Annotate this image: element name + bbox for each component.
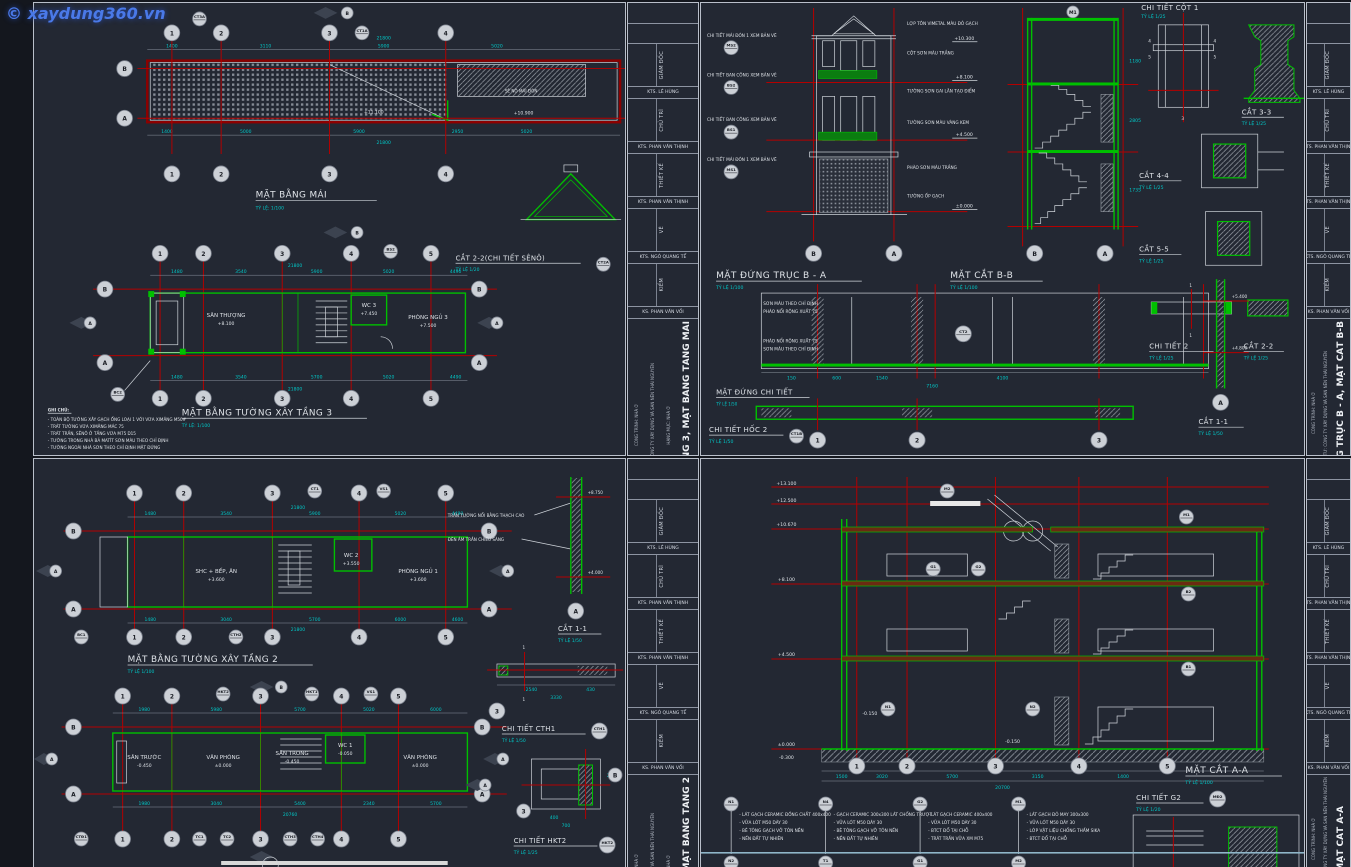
svg-text:1500: 1500 — [836, 774, 848, 780]
g2-detail: CHI TIẾT G2 TỶ LỆ 1/20 MĐ2 — [1133, 791, 1299, 867]
section-aa: +13.100 +12.500 +10.670 +8.100 +4.500 ±0… — [771, 477, 1282, 791]
svg-text:A: A — [50, 757, 54, 763]
svg-text:- BTCT ĐỔ TẠI CHỖ: - BTCT ĐỔ TẠI CHỖ — [928, 828, 969, 833]
svg-text:B: B — [280, 685, 284, 691]
svg-text:B: B — [613, 772, 618, 779]
svg-text:TỶ LỆ 1/25: TỶ LỆ 1/25 — [1243, 354, 1268, 362]
svg-text:4: 4 — [349, 396, 353, 403]
svg-text:TỶ LỆ 1/50: TỶ LỆ 1/50 — [501, 736, 526, 744]
svg-text:+10.900: +10.900 — [514, 110, 534, 116]
svg-text:1480: 1480 — [144, 617, 156, 623]
watermark-logo: © xaydung360.vn — [6, 4, 166, 23]
svg-text:+8.100: +8.100 — [956, 75, 973, 81]
svg-text:4490: 4490 — [450, 269, 462, 275]
drawing-title: CHI TIẾT CTH1 — [502, 723, 556, 733]
drawing-title: MẶT BẰNG MÁI — [256, 188, 327, 201]
svg-text:- BTCT ĐỔ TẠI CHỖ: - BTCT ĐỔ TẠI CHỖ — [1027, 836, 1068, 841]
svg-text:4600: 4600 — [452, 617, 464, 623]
svg-text:3040: 3040 — [220, 617, 232, 623]
svg-text:TỶ LỆ 1/25: TỶ LỆ 1/25 — [1138, 256, 1163, 264]
drawing-title: MẶT BẰNG TƯỜNG XÂY TẦNG 3 — [182, 405, 333, 418]
drawing-title: CẮT 2-2(CHI TIẾT SÊNÔ) — [456, 252, 545, 262]
svg-text:- LỚP VẬT LIỆU CHỐNG THẤM SIKA: - LỚP VẬT LIỆU CHỐNG THẤM SIKA — [1027, 828, 1101, 833]
svg-text:+3.600: +3.600 — [208, 577, 225, 583]
room-label: SÂN THƯỢNG — [207, 312, 246, 319]
svg-text:±0.000: ±0.000 — [956, 204, 973, 210]
svg-text:2: 2 — [182, 634, 186, 641]
svg-text:G2: G2 — [975, 564, 981, 569]
svg-text:5020: 5020 — [395, 511, 407, 517]
svg-text:5: 5 — [429, 251, 433, 258]
svg-text:B2: B2 — [1186, 589, 1192, 594]
titleblock-floorplans: GIÁM ĐỐC KTS. LÊ HÙNG CHỦ TRÌ KTS. PHAN … — [627, 458, 699, 867]
svg-text:CT2A: CT2A — [598, 259, 609, 264]
svg-text:HKT2: HKT2 — [217, 689, 229, 694]
sheet-kt02-drawing-area: 21800 1400311059005020 14005000590029505… — [33, 2, 626, 456]
svg-text:TỶ LỆ 1/100: TỶ LỆ 1/100 — [127, 667, 155, 675]
svg-text:1: 1 — [170, 30, 174, 37]
svg-text:3: 3 — [1181, 116, 1184, 121]
svg-text:3540: 3540 — [235, 374, 247, 380]
svg-text:BS2: BS2 — [386, 246, 395, 251]
svg-text:5020: 5020 — [383, 269, 395, 275]
svg-text:700: 700 — [562, 823, 571, 829]
svg-text:- TRÁT TRẦN VỮA XM M75: - TRÁT TRẦN VỮA XM M75 — [928, 836, 983, 841]
svg-text:- TOÀN BỘ TƯỜNG XÂY GẠCH ỐNG L: - TOÀN BỘ TƯỜNG XÂY GẠCH ỐNG LOẠI 1 VỚI … — [48, 417, 187, 422]
svg-text:T1: T1 — [823, 858, 829, 863]
svg-text:VS1: VS1 — [367, 689, 376, 694]
svg-text:A: A — [892, 251, 897, 258]
svg-text:1980: 1980 — [139, 707, 151, 713]
stair-flights — [1035, 85, 1091, 223]
titleblock-kt02: GIÁM ĐỐC KTS. LÊ HÙNG CHỦ TRÌ KTS. PHAN … — [627, 2, 699, 456]
svg-text:A: A — [1218, 400, 1223, 407]
svg-text:1: 1 — [121, 836, 125, 843]
svg-text:B: B — [487, 528, 492, 535]
svg-text:2540: 2540 — [526, 687, 538, 693]
svg-text:2: 2 — [182, 490, 186, 497]
svg-text:6000: 6000 — [430, 707, 442, 713]
cut-1-1-q2: +5.400 +4.800 A CẮT 1-1 TỶ LỆ 1/50 — [1197, 279, 1248, 437]
svg-text:2805: 2805 — [1129, 118, 1141, 124]
cad-drawing-page: © xaydung360.vn 21800 1400311059005020 1… — [0, 0, 1351, 867]
svg-text:4: 4 — [357, 490, 361, 497]
svg-text:PHÀO NỔI RỘNG XUẤT 75: PHÀO NỔI RỘNG XUẤT 75 — [763, 309, 818, 314]
titleblock-row: GIÁM ĐỐC — [628, 44, 698, 87]
svg-text:5: 5 — [444, 634, 448, 641]
svg-text:5700: 5700 — [946, 774, 958, 780]
svg-text:2: 2 — [219, 30, 223, 37]
svg-text:A: A — [480, 791, 485, 798]
svg-text:A: A — [487, 606, 492, 613]
svg-text:B: B — [122, 66, 127, 73]
svg-text:M1: M1 — [1069, 10, 1077, 16]
svg-text:3: 3 — [495, 708, 499, 715]
svg-text:5020: 5020 — [383, 374, 395, 380]
svg-text:1: 1 — [1189, 333, 1192, 338]
svg-text:TỶ LỆ 1/25: TỶ LỆ 1/25 — [1148, 354, 1173, 362]
revision-box — [1307, 459, 1350, 500]
svg-text:3: 3 — [521, 808, 525, 815]
section-note: TRẦN TƯỜNG NỔI BẰNG THẠCH CAO — [447, 513, 525, 518]
svg-text:A: A — [71, 606, 76, 613]
svg-text:CT1B: CT1B — [791, 431, 802, 436]
svg-text:VĂN PHÒNG: VĂN PHÒNG — [403, 754, 437, 761]
elevation-annotation: LỢP TÔN VIMETAL MÀU ĐỎ GẠCH — [907, 21, 978, 26]
svg-text:VS1: VS1 — [379, 486, 388, 491]
svg-text:21800: 21800 — [288, 386, 303, 392]
svg-text:- VỮA LÓT M50 DÀY 30: - VỮA LÓT M50 DÀY 30 — [1027, 820, 1076, 825]
svg-text:HKT2: HKT2 — [602, 840, 614, 845]
svg-text:3: 3 — [280, 251, 284, 258]
svg-text:CẮT 5-5: CẮT 5-5 — [1139, 243, 1169, 253]
svg-text:7160: 7160 — [926, 383, 938, 389]
svg-text:1980: 1980 — [139, 801, 151, 807]
svg-text:TỶ LỆ 1/50: TỶ LỆ 1/50 — [715, 401, 738, 406]
svg-text:CẮT 1-1: CẮT 1-1 — [1198, 416, 1228, 426]
svg-text:BS1: BS1 — [727, 127, 736, 132]
drawing-title: CHI TIẾT HKT2 — [514, 835, 567, 845]
svg-text:A: A — [483, 783, 487, 789]
svg-text:MS2: MS2 — [726, 43, 736, 48]
svg-text:TỶ LỆ: 1/100: TỶ LỆ: 1/100 — [181, 421, 210, 429]
sheet-title: MẶT ĐỨNG TRỤC B - A, MẶT CẮT B-B — [1336, 321, 1346, 456]
cut-4-4: CẮT 4-4 TỶ LỆ 1/25 — [1138, 134, 1284, 191]
svg-text:4: 4 — [444, 30, 448, 37]
svg-text:3: 3 — [327, 171, 331, 178]
svg-text:TỶ LỆ 1/25: TỶ LỆ 1/25 — [1140, 12, 1165, 20]
drawing-title: CHI TIẾT CỘT 1 — [1141, 3, 1198, 12]
svg-text:G1: G1 — [930, 564, 936, 569]
drawing-title: MẶT BẰNG TƯỜNG XÂY TẦNG 2 — [128, 652, 279, 665]
svg-text:TỶ LỆ 1/25: TỶ LỆ 1/25 — [1241, 119, 1266, 127]
drawing-title: CHI TIẾT G2 — [1136, 792, 1181, 802]
room-label: SHC + BẾP, ĂN — [195, 567, 237, 575]
drawing-title: MẶT ĐỨNG TRỤC B - A — [716, 269, 827, 281]
svg-text:+12.500: +12.500 — [776, 498, 796, 504]
svg-text:5020: 5020 — [363, 707, 375, 713]
svg-text:600: 600 — [832, 376, 841, 382]
project-title-area: CÔNG TRÌNH: NHÀ Ở CHỦ ĐẦU TƯ: CÔNG TY XÂ… — [628, 319, 698, 456]
svg-text:GHI CHÚ:: GHI CHÚ: — [48, 407, 70, 412]
sheet-section-aa-area: +13.100 +12.500 +10.670 +8.100 +4.500 ±0… — [700, 458, 1305, 867]
svg-text:5700: 5700 — [430, 801, 442, 807]
svg-text:3: 3 — [270, 490, 274, 497]
svg-text:3: 3 — [1097, 438, 1101, 445]
roof-plan: 21800 1400311059005020 14005000590029505… — [117, 7, 625, 212]
svg-text:- NỀN ĐẤT TỰ NHIÊN: - NỀN ĐẤT TỰ NHIÊN — [834, 836, 878, 841]
floor2-plan: 1 2 3 4 5 CT1 VS1 B A A B A A — [36, 484, 514, 675]
cut-5-5: CẮT 5-5 TỶ LỆ 1/25 — [1138, 212, 1262, 266]
svg-text:A: A — [103, 360, 108, 367]
svg-text:-0.450: -0.450 — [285, 759, 300, 765]
svg-text:4100: 4100 — [997, 376, 1009, 382]
svg-text:N2: N2 — [728, 858, 734, 863]
materials-legend: N1 - LÁT GẠCH CERAMIC ĐỒNG CHẤT 400x400 … — [701, 797, 1304, 867]
svg-text:A: A — [501, 757, 505, 763]
svg-text:TỶ LỆ 1/100: TỶ LỆ 1/100 — [715, 283, 743, 291]
hkt2-detail: 400220700 B 3 A CHI TIẾT HKT2 TỶ LỆ 1/25… — [465, 749, 622, 856]
svg-text:21800: 21800 — [288, 263, 303, 269]
svg-text:- TƯỜNG NGOÀI NHÀ SƠN THEO CHỈ: - TƯỜNG NGOÀI NHÀ SƠN THEO CHỈ ĐỊNH MẶT … — [48, 445, 161, 450]
svg-text:1: 1 — [158, 251, 162, 258]
section-bb: M1 1180 2805 1735 B — [949, 6, 1141, 291]
svg-text:3540: 3540 — [235, 269, 247, 275]
titleblock-kt03: GIÁM ĐỐC KTS. LÊ HÙNG CHỦ TRÌ KTS. PHAN … — [1306, 2, 1351, 456]
level-label: +13.100 — [776, 481, 796, 487]
svg-text:TỶ LỆ 1/25: TỶ LỆ 1/25 — [513, 848, 538, 856]
svg-text:-0.150: -0.150 — [1005, 739, 1020, 745]
svg-text:A: A — [506, 569, 510, 575]
svg-text:150: 150 — [787, 376, 796, 382]
svg-text:1: 1 — [855, 764, 859, 771]
svg-text:CHI TIẾT BAN CÔNG XEM BẢN VẼ: CHI TIẾT BAN CÔNG XEM BẢN VẼ — [707, 72, 777, 78]
general-notes: GHI CHÚ: - TOÀN BỘ TƯỜNG XÂY GẠCH ỐNG LO… — [48, 407, 187, 450]
svg-text:B: B — [811, 251, 816, 258]
section-aa-canvas: +13.100 +12.500 +10.670 +8.100 +4.500 ±0… — [701, 459, 1304, 867]
svg-text:4: 4 — [357, 634, 361, 641]
revision-box — [1307, 3, 1350, 44]
svg-text:- BÊ TÔNG GẠCH VỠ TÔN NỀN: - BÊ TÔNG GẠCH VỠ TÔN NỀN — [739, 828, 803, 833]
svg-text:B: B — [346, 11, 350, 17]
svg-text:5900: 5900 — [311, 269, 323, 275]
svg-text:PHÀO SƠN MÀU TRẮNG: PHÀO SƠN MÀU TRẮNG — [907, 165, 957, 170]
svg-text:5: 5 — [429, 396, 433, 403]
svg-text:4: 4 — [1214, 39, 1217, 44]
svg-text:4: 4 — [339, 693, 343, 700]
svg-text:1: 1 — [170, 171, 174, 178]
callout-note: CHI TIẾT MÁI ĐÓN 1 XEM BẢN VẼ — [707, 32, 777, 38]
svg-text:B: B — [355, 230, 359, 236]
svg-text:-0.450: -0.450 — [137, 763, 152, 769]
svg-text:2: 2 — [201, 396, 205, 403]
svg-text:- GẠCH CERAMIC 300x300 LÁT CHỐ: - GẠCH CERAMIC 300x300 LÁT CHỐNG TRƯỢT — [834, 812, 933, 817]
bottom-rule — [701, 852, 1304, 854]
svg-text:1: 1 — [132, 634, 136, 641]
svg-text:3: 3 — [270, 634, 274, 641]
svg-text:2: 2 — [915, 438, 919, 445]
pillar-detail: CHI TIẾT CỘT 1 TỶ LỆ 1/25 44 55 3 — [1140, 3, 1218, 122]
svg-text:N1: N1 — [728, 799, 734, 804]
svg-text:2: 2 — [905, 764, 909, 771]
svg-text:5: 5 — [1214, 55, 1217, 60]
svg-text:2340: 2340 — [363, 801, 375, 807]
svg-text:5400: 5400 — [294, 801, 306, 807]
floor3-plan: B 1 2 3 4 BS2 B A A B A A — [69, 227, 502, 430]
revision-box — [628, 3, 698, 44]
dim: 21800 — [376, 36, 391, 42]
svg-text:21800: 21800 — [291, 505, 305, 511]
svg-text:1480: 1480 — [171, 269, 183, 275]
svg-text:CẮT 4-4: CẮT 4-4 — [1139, 170, 1169, 180]
svg-text:TỶ LỆ 1/50: TỶ LỆ 1/50 — [1197, 429, 1222, 437]
niche-detail-bar: CHI TIẾT HỐC 2 TỶ LỆ 1/50 CT1B 1 2 3 — [708, 398, 1133, 448]
svg-text:2: 2 — [170, 836, 174, 843]
svg-text:21800: 21800 — [291, 627, 305, 633]
svg-text:+8.100: +8.100 — [218, 321, 235, 327]
svg-text:20760: 20760 — [283, 812, 297, 818]
svg-text:3: 3 — [258, 836, 262, 843]
svg-text:- TRÁT TƯỜNG VỮA XIMĂNG MÁC 75: - TRÁT TƯỜNG VỮA XIMĂNG MÁC 75 — [48, 424, 124, 429]
svg-text:CHI TIẾT BAN CÔNG XEM BẢN VẼ: CHI TIẾT BAN CÔNG XEM BẢN VẼ — [707, 116, 777, 122]
svg-text:1: 1 — [815, 438, 819, 445]
titleblock-name: KTS. LÊ HÙNG — [628, 87, 698, 99]
svg-text:2950: 2950 — [452, 129, 464, 135]
svg-text:+7.500: +7.500 — [420, 323, 437, 329]
front-elevation: B A CHI TIẾT MÁI ĐÓN 1 XEM BẢN VẼ MS2 CH… — [707, 8, 978, 291]
svg-text:A: A — [495, 321, 499, 327]
svg-text:WC 3: WC 3 — [362, 303, 377, 309]
svg-text:4: 4 — [339, 836, 343, 843]
svg-text:5900: 5900 — [378, 44, 390, 50]
svg-text:5: 5 — [396, 836, 400, 843]
svg-text:ĐÈN ÂM TRẦN CHIẾU SÁNG: ĐÈN ÂM TRẦN CHIẾU SÁNG — [448, 536, 504, 542]
svg-text:+4.000: +4.000 — [588, 570, 604, 575]
svg-text:TƯỜNG SƠN GAI LĂN TẠO ĐIỂM: TƯỜNG SƠN GAI LĂN TẠO ĐIỂM — [906, 88, 976, 93]
svg-text:5: 5 — [396, 693, 400, 700]
svg-text:A: A — [573, 608, 578, 615]
cut-3-3: CẮT 3-3 TỶ LỆ 1/25 — [1241, 25, 1304, 127]
sheet-title: MẶT BẰNG TẦNG 3, MẶT BẰNG TẦNG MÁI — [682, 321, 692, 456]
svg-text:B: B — [71, 724, 76, 731]
svg-text:+7.450: +7.450 — [361, 311, 378, 317]
svg-text:+3.600: +3.600 — [410, 577, 427, 583]
material-callout: M2 — [940, 484, 954, 498]
svg-text:5900: 5900 — [353, 129, 365, 135]
svg-text:5700: 5700 — [309, 617, 321, 623]
svg-text:CHI TIẾT 2: CHI TIẾT 2 — [1149, 341, 1188, 351]
svg-text:4: 4 — [349, 251, 353, 258]
roof-note: SÊ NÔ MÁI ĐÓN — [505, 88, 538, 93]
svg-text:5: 5 — [444, 490, 448, 497]
svg-text:- BÊ TÔNG GẠCH VỠ TÔN NỀN: - BÊ TÔNG GẠCH VỠ TÔN NỀN — [834, 828, 898, 833]
svg-text:PHÒNG NGỦ 1: PHÒNG NGỦ 1 — [398, 567, 438, 575]
svg-text:N4: N4 — [823, 799, 829, 804]
svg-text:M2: M2 — [944, 486, 951, 491]
svg-text:±0.000: ±0.000 — [778, 742, 795, 748]
svg-text:5: 5 — [1148, 55, 1151, 60]
svg-text:+4.500: +4.500 — [956, 132, 973, 138]
svg-text:BC2: BC2 — [114, 389, 123, 394]
stair — [278, 545, 311, 593]
svg-text:1: 1 — [158, 396, 162, 403]
svg-text:3: 3 — [258, 693, 262, 700]
detail-elevation-band: SƠN MÀU THEO CHỈ ĐỊNH PHÀO NỔI RỘNG XUẤT… — [715, 284, 1208, 406]
svg-text:- TRÁT TRẦN, SÊNÔ Ở TẦNG VỮA M: - TRÁT TRẦN, SÊNÔ Ở TẦNG VỮA M75 D15 — [48, 431, 137, 436]
svg-text:20700: 20700 — [995, 785, 1010, 791]
svg-text:2: 2 — [201, 251, 205, 258]
band-note: SƠN MÀU THEO CHỈ ĐỊNH — [763, 301, 818, 306]
svg-text:- VỮA LÓT M50 DÀY 30: - VỮA LÓT M50 DÀY 30 — [739, 820, 788, 825]
sheet-kt03-drawing-area: B A CHI TIẾT MÁI ĐÓN 1 XEM BẢN VẼ MS2 CH… — [700, 2, 1305, 456]
drawing-title: MẶT CẮT A-A — [1185, 763, 1248, 776]
svg-text:PHÒNG NGỦ 3: PHÒNG NGỦ 3 — [408, 313, 448, 321]
titleblock-section-aa: GIÁM ĐỐC KTS. LÊ HÙNG CHỦ TRÌ KTS. PHAN … — [1306, 458, 1351, 867]
sheet-floor-plans-area: 1 2 3 4 5 CT1 VS1 B A A B A A — [33, 458, 626, 867]
svg-text:A: A — [122, 116, 127, 123]
svg-text:3110: 3110 — [260, 44, 272, 50]
svg-text:BC1: BC1 — [77, 632, 86, 637]
svg-text:4: 4 — [1148, 39, 1151, 44]
svg-text:1: 1 — [1189, 283, 1192, 288]
svg-text:M2: M2 — [1015, 858, 1022, 863]
svg-text:BS2: BS2 — [727, 82, 736, 87]
svg-text:1: 1 — [523, 697, 526, 702]
svg-text:3: 3 — [993, 764, 997, 771]
svg-text:G2: G2 — [917, 799, 923, 804]
svg-text:5900: 5900 — [309, 511, 321, 517]
svg-text:B: B — [480, 724, 485, 731]
svg-text:CTH4: CTH4 — [312, 834, 324, 839]
svg-text:2: 2 — [219, 171, 223, 178]
svg-text:N1: N1 — [885, 704, 891, 709]
svg-text:TC1: TC1 — [195, 834, 203, 839]
svg-text:+4.800: +4.800 — [1232, 346, 1248, 351]
svg-text:4490: 4490 — [450, 374, 462, 380]
svg-text:5020: 5020 — [491, 44, 503, 50]
drawing-title: MẶT ĐỨNG CHI TIẾT — [716, 386, 793, 396]
svg-text:4: 4 — [1077, 764, 1081, 771]
grid-bubble: 1 — [164, 25, 180, 41]
sheet-kt03-canvas: B A CHI TIẾT MÁI ĐÓN 1 XEM BẢN VẼ MS2 CH… — [701, 3, 1304, 455]
stair — [316, 301, 348, 343]
svg-text:WC 2: WC 2 — [344, 553, 359, 559]
project-title-area: CÔNG TRÌNH: NHÀ Ở CHỦ ĐẦU TƯ: CÔNG TY XÂ… — [1307, 775, 1350, 867]
svg-text:1: 1 — [523, 645, 526, 650]
project-title-area: CÔNG TRÌNH: NHÀ Ở CHỦ ĐẦU TƯ: CÔNG TY XÂ… — [1307, 319, 1350, 456]
svg-text:CTĐ1: CTĐ1 — [76, 834, 88, 839]
svg-text:1480: 1480 — [144, 511, 156, 517]
svg-text:B: B — [103, 287, 108, 294]
svg-text:400: 400 — [550, 815, 559, 821]
svg-text:2: 2 — [170, 693, 174, 700]
svg-text:+5.400: +5.400 — [1232, 294, 1248, 299]
svg-text:1540: 1540 — [876, 376, 888, 382]
svg-text:+8.100: +8.100 — [778, 577, 795, 583]
svg-text:A: A — [88, 321, 92, 327]
drawing-title: MẶT CẮT B-B — [950, 268, 1013, 281]
svg-text:3020: 3020 — [876, 774, 888, 780]
svg-text:B: B — [477, 287, 482, 294]
svg-text:WC 1: WC 1 — [338, 743, 353, 749]
svg-text:A: A — [54, 569, 58, 575]
svg-text:- LÁT GẠCH ĐỎ MAY 300x300: - LÁT GẠCH ĐỎ MAY 300x300 — [1027, 812, 1089, 817]
svg-text:G1: G1 — [917, 858, 923, 863]
svg-text:CTH2: CTH2 — [230, 632, 242, 637]
svg-text:21800: 21800 — [376, 140, 391, 146]
drawing-title: CHI TIẾT HỐC 2 — [709, 424, 767, 434]
svg-text:5980: 5980 — [210, 707, 222, 713]
svg-text:5700: 5700 — [311, 374, 323, 380]
svg-text:1480: 1480 — [171, 374, 183, 380]
svg-text:M1: M1 — [1015, 799, 1022, 804]
svg-text:3: 3 — [280, 396, 284, 403]
svg-text:-0.150: -0.150 — [862, 711, 877, 717]
svg-text:TỶ LỆ 1/100: TỶ LỆ 1/100 — [1184, 778, 1212, 786]
svg-text:TỶ LỆ 1/25: TỶ LỆ 1/25 — [1138, 183, 1163, 191]
svg-text:- VỮA LÓT M50 DÀY 30: - VỮA LÓT M50 DÀY 30 — [834, 820, 883, 825]
svg-text:+10.300: +10.300 — [954, 36, 974, 42]
svg-text:TỶ LỆ 1/50: TỶ LỆ 1/50 — [557, 636, 582, 644]
wall-section-1-1: TRẦN TƯỜNG NỔI BẰNG THẠCH CAO ĐÈN ÂM TRẦ… — [447, 477, 611, 644]
svg-text:3: 3 — [327, 30, 331, 37]
drawing-title: CẮT 1-1 — [558, 623, 587, 633]
svg-text:1400: 1400 — [161, 129, 173, 135]
svg-text:5000: 5000 — [240, 129, 252, 135]
svg-text:TỶ LỆ 1/20: TỶ LỆ 1/20 — [1135, 805, 1161, 813]
svg-text:A: A — [71, 791, 76, 798]
svg-text:CTH1: CTH1 — [594, 726, 606, 731]
